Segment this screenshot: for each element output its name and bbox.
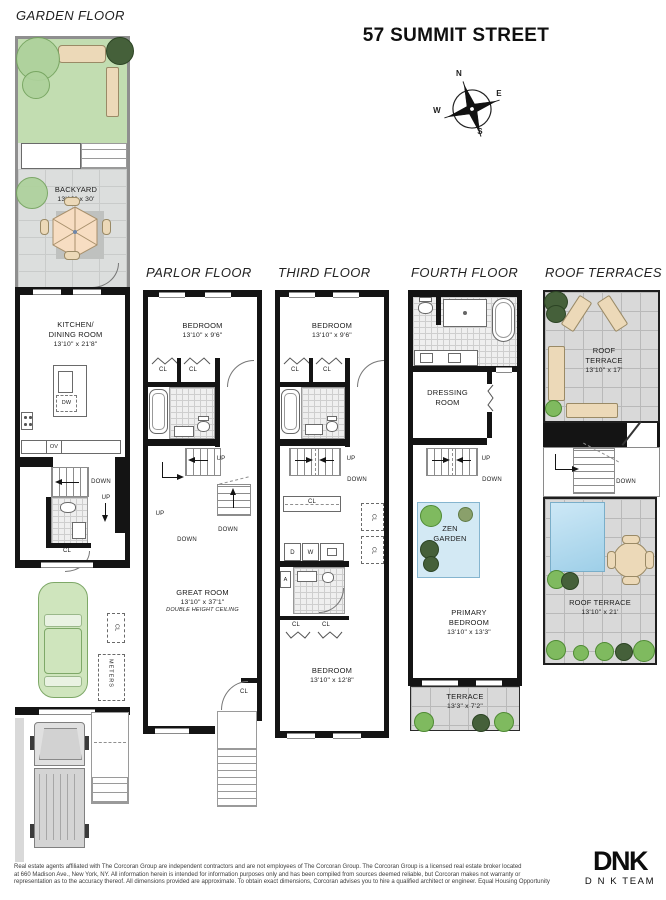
chair — [64, 197, 80, 206]
down-label: DOWN — [337, 476, 377, 484]
wall — [215, 358, 220, 447]
laundry-sink-basin — [327, 548, 337, 556]
room-name: BEDROOM — [283, 321, 381, 331]
chair — [607, 551, 616, 569]
stoop-steps — [92, 777, 128, 803]
room-name: DRESSING — [408, 388, 487, 398]
closet-label: CL — [369, 541, 376, 561]
compass-n: N — [452, 69, 466, 80]
window — [73, 289, 101, 295]
garden-floor-plan: BACKYARD 13'10" x 30' KITCHEN/ DINING RO… — [15, 36, 130, 862]
room-note: DOUBLE HEIGHT CEILING — [153, 607, 252, 614]
sink-icon — [297, 571, 317, 582]
window — [205, 292, 231, 298]
dishwasher-label: DW — [56, 400, 77, 407]
wall — [517, 297, 522, 686]
down-label: DOWN — [208, 526, 248, 534]
bedroom-label: BEDROOM 13'10" x 9'6" — [283, 321, 381, 340]
room-name: KITCHEN/ — [26, 320, 125, 330]
plant-icon — [545, 400, 562, 417]
utility-label: A — [280, 577, 291, 584]
closet-label: CL — [306, 621, 346, 629]
arrow-head — [177, 474, 184, 480]
arrow-line — [162, 462, 163, 478]
room-name: ROOF TERRACE — [550, 598, 650, 608]
plant-icon — [573, 645, 589, 661]
dashed-line — [315, 448, 316, 476]
room-dims: 13'10" x 9'6" — [283, 331, 381, 340]
wall — [487, 412, 492, 438]
parlor-floor-plan: BEDROOM 13'10" x 9'6" CL CL UP UP DOWN D… — [143, 290, 262, 807]
room-name: GREAT ROOM — [153, 588, 252, 598]
arrow-line — [162, 477, 178, 478]
arrow-head — [188, 457, 195, 463]
room-dims: 13'10" x 13'3" — [424, 628, 514, 637]
bifold-door-icon — [283, 357, 311, 365]
wall — [280, 616, 349, 620]
window — [333, 733, 361, 739]
room-name2: DINING ROOM — [26, 330, 125, 340]
compass-s: S — [473, 127, 487, 138]
down-label: DOWN — [167, 536, 207, 544]
garage-door — [41, 562, 93, 568]
toilet-tank — [327, 416, 337, 421]
down-label: DOWN — [81, 478, 121, 486]
third-floor-plan: BEDROOM 13'10" x 9'6" CL CL UP DOWN CL C… — [275, 290, 389, 738]
logo-team: D N K TEAM — [577, 876, 663, 887]
room-name: BEDROOM — [283, 666, 381, 676]
fourth-floor-plan: DRESSING ROOM UP DOWN ZEN GARDEN PRIMARY… — [408, 290, 522, 738]
plant-icon — [458, 507, 473, 522]
car-roof — [44, 628, 82, 674]
bifold-door-icon — [183, 357, 211, 365]
room-dims: 13'10" x 17' — [572, 366, 636, 375]
wall — [487, 372, 492, 384]
garage-opening — [39, 709, 95, 715]
bifold-door-icon — [285, 631, 311, 639]
compass-rose-icon — [435, 72, 509, 146]
sink-icon — [305, 424, 323, 435]
primary-bedroom-label: PRIMARY BEDROOM 13'10" x 13'3" — [424, 608, 514, 637]
fourth-floor-title: FOURTH FLOOR — [411, 265, 518, 280]
dashed-line — [94, 742, 126, 743]
up-label: UP — [466, 455, 506, 463]
chair — [102, 219, 111, 235]
garden-floor-title: GARDEN FLOOR — [16, 8, 125, 23]
compass-e: E — [492, 89, 506, 100]
stoop-stairs — [217, 749, 257, 807]
toilet-icon — [60, 502, 76, 513]
wheel — [85, 736, 89, 750]
burner-icon — [24, 416, 27, 419]
bathtub-basin — [284, 393, 297, 430]
vanity-sink — [420, 353, 433, 363]
upper-terrace-label: ROOF TERRACE 13'10" x 17' — [572, 346, 636, 375]
disclaimer-line: representation as to the accuracy thereo… — [14, 879, 566, 887]
backyard: BACKYARD 13'10" x 30' — [15, 36, 130, 293]
up-label: UP — [86, 494, 126, 502]
up-label: UP — [201, 455, 241, 463]
chair — [622, 576, 640, 585]
closet-label: CL — [292, 498, 332, 506]
toilet-tank — [419, 297, 432, 302]
car-windshield — [44, 614, 82, 627]
wall — [345, 358, 350, 447]
wall — [143, 439, 220, 446]
lower-terrace-label: ROOF TERRACE 13'10" x 21' — [550, 598, 650, 617]
wall — [436, 297, 441, 325]
toilet-icon — [326, 421, 338, 432]
room-name: BACKYARD — [26, 185, 126, 195]
third-floor-title: THIRD FLOOR — [278, 265, 371, 280]
parlor-floor-title: PARLOR FLOOR — [146, 265, 252, 280]
truck-hood — [39, 728, 82, 760]
chair — [622, 535, 640, 544]
dnk-logo: DNK D N K TEAM — [577, 848, 663, 887]
room-dims: 13'3" x 7'2" — [428, 702, 502, 711]
wall — [384, 297, 389, 731]
vanity-sink — [448, 353, 461, 363]
window — [159, 292, 185, 298]
arrow-head — [306, 457, 313, 463]
wall — [408, 438, 487, 445]
window — [155, 728, 189, 734]
roof-terraces-title: ROOF TERRACES — [545, 265, 662, 280]
roof-terraces-plan: ROOF TERRACE 13'10" x 17' DOWN ROOF TERR… — [543, 290, 660, 667]
chair — [645, 551, 654, 569]
wall — [275, 439, 349, 446]
room-dims: 13'10" x 21'8" — [26, 340, 125, 349]
arrow-line — [555, 454, 556, 470]
car-rear-window — [44, 676, 82, 687]
room-name2: TERRACE — [572, 356, 636, 366]
plant-icon — [615, 643, 633, 661]
outdoor-bench — [566, 403, 618, 418]
wall — [257, 297, 262, 721]
sink-icon — [174, 426, 194, 437]
arrow-line — [59, 482, 79, 483]
terrace-label: TERRACE 13'3" x 7'2" — [428, 692, 502, 711]
plant-icon — [633, 640, 655, 662]
toilet-icon — [197, 421, 210, 432]
window — [287, 733, 315, 739]
accordion-door-icon — [487, 384, 495, 412]
arrow-line — [555, 469, 573, 470]
wall — [408, 290, 522, 297]
plant-icon — [472, 714, 490, 732]
disclaimer: Real estate agents affiliated with The C… — [14, 864, 566, 887]
bifold-door-icon — [315, 357, 343, 365]
washer-label: W — [302, 549, 319, 557]
kitchen-label: KITCHEN/ DINING ROOM 13'10" x 21'8" — [26, 320, 125, 349]
bedroom-label: BEDROOM 13'10" x 9'6" — [153, 321, 252, 340]
dashed-line — [452, 448, 453, 476]
cooktop — [21, 412, 33, 430]
up-label: UP — [140, 510, 180, 518]
toilet-icon — [418, 302, 433, 314]
room-name: ROOF — [572, 346, 636, 356]
stairs — [573, 448, 615, 494]
tub-basin — [495, 302, 512, 338]
door-swing — [357, 360, 384, 387]
door-opening — [627, 423, 657, 447]
outdoor-bench — [106, 67, 119, 117]
chair — [64, 251, 80, 260]
lounge-chair — [548, 346, 565, 401]
wall — [15, 457, 53, 467]
closet-label: CL — [233, 688, 255, 696]
chair — [40, 219, 49, 235]
wheel — [85, 824, 89, 838]
dressing-room-label: DRESSING ROOM — [408, 388, 487, 408]
arrow-head — [55, 479, 62, 485]
oven-label: OV — [46, 444, 62, 451]
wall — [15, 295, 20, 568]
room-name2: BEDROOM — [424, 618, 514, 628]
toilet-icon — [322, 572, 334, 583]
down-label: DOWN — [472, 476, 512, 484]
plant-icon — [595, 642, 614, 661]
plant-icon — [561, 572, 579, 590]
room-dims: 13'10" x 12'8" — [283, 676, 381, 685]
room-name: TERRACE — [428, 692, 502, 702]
wall — [275, 297, 280, 731]
shower-head-icon — [463, 311, 467, 315]
door-opening — [496, 367, 512, 373]
sink-icon — [72, 522, 86, 539]
plant-icon — [494, 712, 514, 732]
great-room-label: GREAT ROOM 13'10" x 37'1" DOUBLE HEIGHT … — [153, 588, 252, 615]
plant-icon — [423, 556, 439, 572]
room-name: BEDROOM — [153, 321, 252, 331]
arrow-head — [230, 488, 236, 495]
kitchen-counter — [21, 440, 121, 454]
bifold-door-icon — [317, 631, 343, 639]
tree-icon — [22, 71, 50, 99]
logo-brand: DNK — [577, 848, 663, 875]
planter — [21, 143, 81, 169]
disclaimer-line: at 660 Madison Ave., New York, NY. All i… — [14, 872, 566, 880]
window — [333, 292, 359, 298]
arrow-head — [456, 457, 463, 463]
arrow-head — [443, 457, 450, 463]
compass-w: W — [430, 106, 444, 117]
page-title: 57 SUMMIT STREET — [350, 25, 562, 47]
up-label: UP — [331, 455, 371, 463]
truck-bed-ribs — [39, 774, 80, 840]
bedroom-label: BEDROOM 13'10" x 12'8" — [283, 666, 381, 685]
wheel — [30, 736, 34, 750]
floorplan-sheet: GARDEN FLOOR 57 SUMMIT STREET N E W S — [0, 0, 666, 900]
driveway-edge — [15, 718, 24, 862]
plant-icon — [546, 640, 566, 660]
zen-garden-label: ZEN GARDEN — [423, 524, 477, 544]
plant-icon — [414, 712, 434, 732]
outdoor-sofa — [58, 45, 106, 63]
room-name: PRIMARY — [424, 608, 514, 618]
outdoor-table — [613, 542, 649, 578]
arrow-head — [102, 515, 108, 522]
disclaimer-line: Real estate agents affiliated with The C… — [14, 864, 566, 872]
closet-label: CL — [173, 366, 213, 374]
window — [289, 292, 315, 298]
toilet-tank — [198, 416, 209, 421]
room-dims: 13'10" x 37'1" — [153, 598, 252, 607]
skylight — [550, 502, 605, 572]
down-label: DOWN — [606, 478, 646, 486]
room-name: ZEN — [423, 524, 477, 534]
door-swing — [227, 360, 254, 387]
arrow-head — [319, 457, 326, 463]
wheel — [30, 824, 34, 838]
dryer-label: D — [284, 549, 301, 557]
closet-label: CL — [307, 366, 347, 374]
closet-label: CL — [369, 508, 376, 528]
room-dims: 13'10" x 21' — [550, 608, 650, 617]
room-name2: GARDEN — [423, 534, 477, 544]
bathtub-basin — [152, 393, 165, 430]
stoop-landing — [217, 711, 257, 749]
meters-label: METERS — [106, 659, 113, 688]
shrub-icon — [106, 37, 134, 65]
island-cabinet — [58, 371, 73, 393]
bifold-door-icon — [151, 357, 179, 365]
room-dims: 13'10" x 9'6" — [153, 331, 252, 340]
closet-label: CL — [112, 619, 119, 637]
garden-steps — [81, 143, 127, 169]
room-name2: ROOM — [408, 398, 487, 408]
arrow-head — [572, 466, 579, 472]
window — [33, 289, 61, 295]
